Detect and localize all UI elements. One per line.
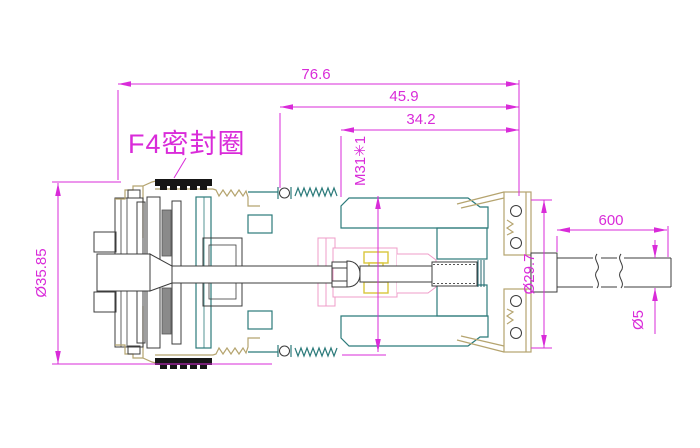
cable xyxy=(531,253,671,292)
cable-break xyxy=(596,254,599,288)
coupling-nut-block xyxy=(504,192,531,255)
flange-lug xyxy=(94,232,116,252)
crimp-barrel xyxy=(432,262,477,286)
socket-finger xyxy=(332,281,347,287)
socket-block xyxy=(437,228,487,259)
dim-text-thread-spec: M31✳1 xyxy=(352,136,369,186)
cable-lines xyxy=(557,258,671,287)
socket-finger xyxy=(332,262,347,268)
body-wall xyxy=(341,198,488,228)
dim-text-overall-length: 76.6 xyxy=(301,66,330,83)
nut-ball xyxy=(511,238,522,249)
dim-text-nut-diameter: Ø29.7 xyxy=(521,254,538,295)
pin-shaft xyxy=(172,266,332,283)
nut-spring xyxy=(507,220,513,235)
nut-ball xyxy=(511,206,522,217)
pin-base xyxy=(97,254,150,291)
dim-text-cable-diameter: Ø5 xyxy=(630,310,647,330)
cable-break xyxy=(620,254,623,288)
flange-cap-top xyxy=(115,186,143,199)
external-thread xyxy=(295,188,337,196)
dim-text-cable-length: 600 xyxy=(598,212,623,229)
pin-shaft-rear xyxy=(360,266,432,282)
shell-top-half xyxy=(143,181,531,259)
seal-ring-label: F4密封圈 xyxy=(128,129,246,159)
dimension-body-length: 45.9 xyxy=(280,88,519,188)
connector-part xyxy=(94,179,671,369)
contact-yellow-bottom xyxy=(364,282,388,293)
barrel-end-stack xyxy=(478,260,484,287)
dim-text-thread-length: 34.2 xyxy=(406,111,435,128)
flange-lug xyxy=(94,292,116,312)
dimension-cable-length: 600 xyxy=(557,212,668,257)
callout-leader xyxy=(174,158,186,178)
dim-text-body-length: 45.9 xyxy=(389,88,418,105)
contact-bar xyxy=(162,288,171,334)
dim-text-flange-diameter: Ø35.85 xyxy=(33,248,50,297)
seal-gasket-top xyxy=(155,179,212,190)
seal-ring-callout: F4密封圈 xyxy=(128,129,246,178)
ball-detail xyxy=(280,188,290,198)
contact-bar xyxy=(162,210,171,256)
contact-yellow-top xyxy=(364,252,388,263)
cad-drawing-view: 76.6 45.9 34.2 M31✳1 Ø35.85 xyxy=(0,0,700,448)
engineering-drawing: 76.6 45.9 34.2 M31✳1 Ø35.85 xyxy=(0,0,700,448)
interior-detail xyxy=(248,215,272,233)
pin-taper xyxy=(150,254,172,291)
cap-detail xyxy=(128,190,140,198)
